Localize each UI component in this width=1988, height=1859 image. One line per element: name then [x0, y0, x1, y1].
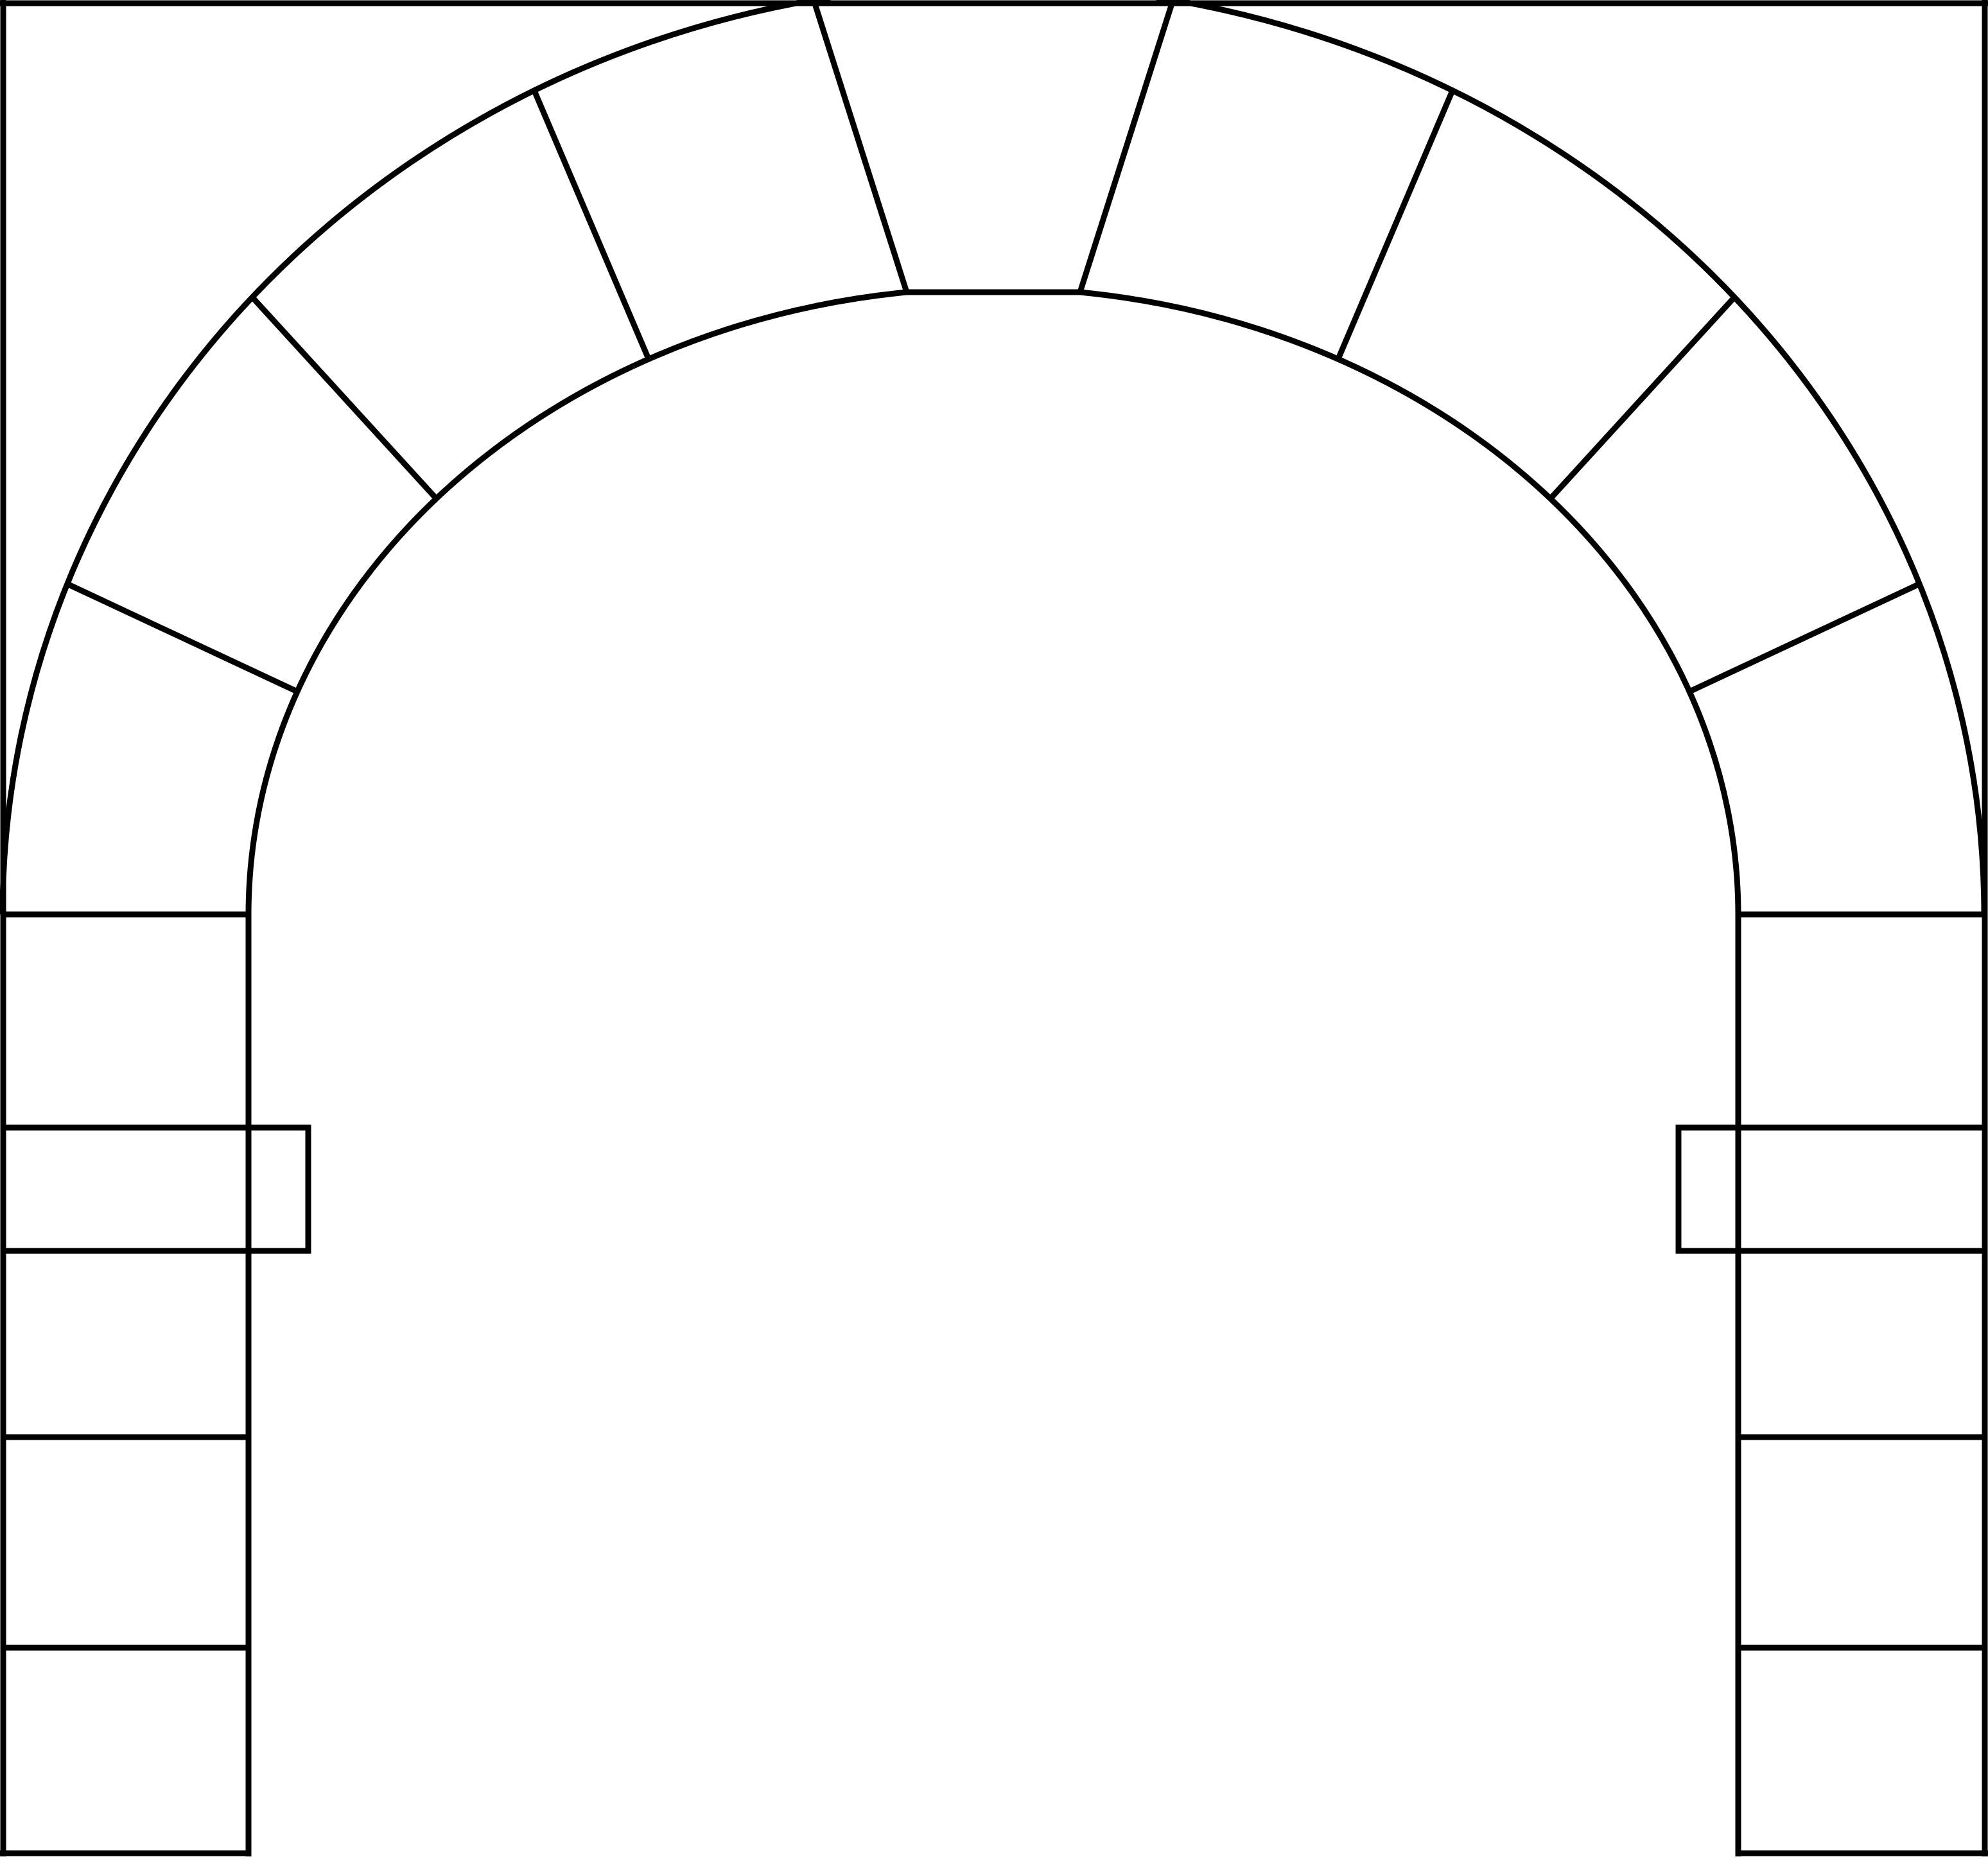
wall-background: [0, 0, 1988, 1859]
arch-drawing-canvas: [0, 0, 1988, 1859]
arch-elevation-diagram: [0, 0, 1988, 1859]
